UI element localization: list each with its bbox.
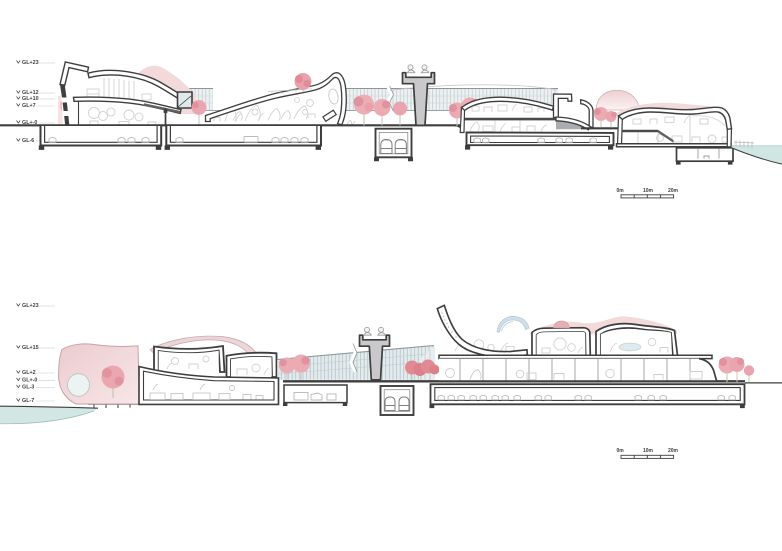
- svg-text:GL+23: GL+23: [22, 60, 39, 66]
- svg-text:GL+2: GL+2: [22, 370, 36, 376]
- svg-text:10m: 10m: [643, 188, 654, 194]
- svg-text:GL+15: GL+15: [22, 345, 39, 351]
- svg-text:20m: 20m: [668, 188, 679, 194]
- svg-text:0m: 0m: [617, 188, 625, 194]
- svg-text:20m: 20m: [668, 448, 679, 454]
- svg-text:GL-3: GL-3: [22, 385, 34, 391]
- svg-text:GL+7: GL+7: [22, 103, 36, 109]
- svg-text:GL+23: GL+23: [22, 303, 39, 309]
- svg-text:0m: 0m: [617, 448, 625, 454]
- svg-text:10m: 10m: [643, 448, 654, 454]
- svg-text:GL+-0: GL+-0: [22, 378, 37, 384]
- svg-text:GL-7: GL-7: [22, 398, 34, 404]
- svg-text:GL+10: GL+10: [22, 96, 39, 102]
- svg-text:GL-6: GL-6: [22, 138, 34, 144]
